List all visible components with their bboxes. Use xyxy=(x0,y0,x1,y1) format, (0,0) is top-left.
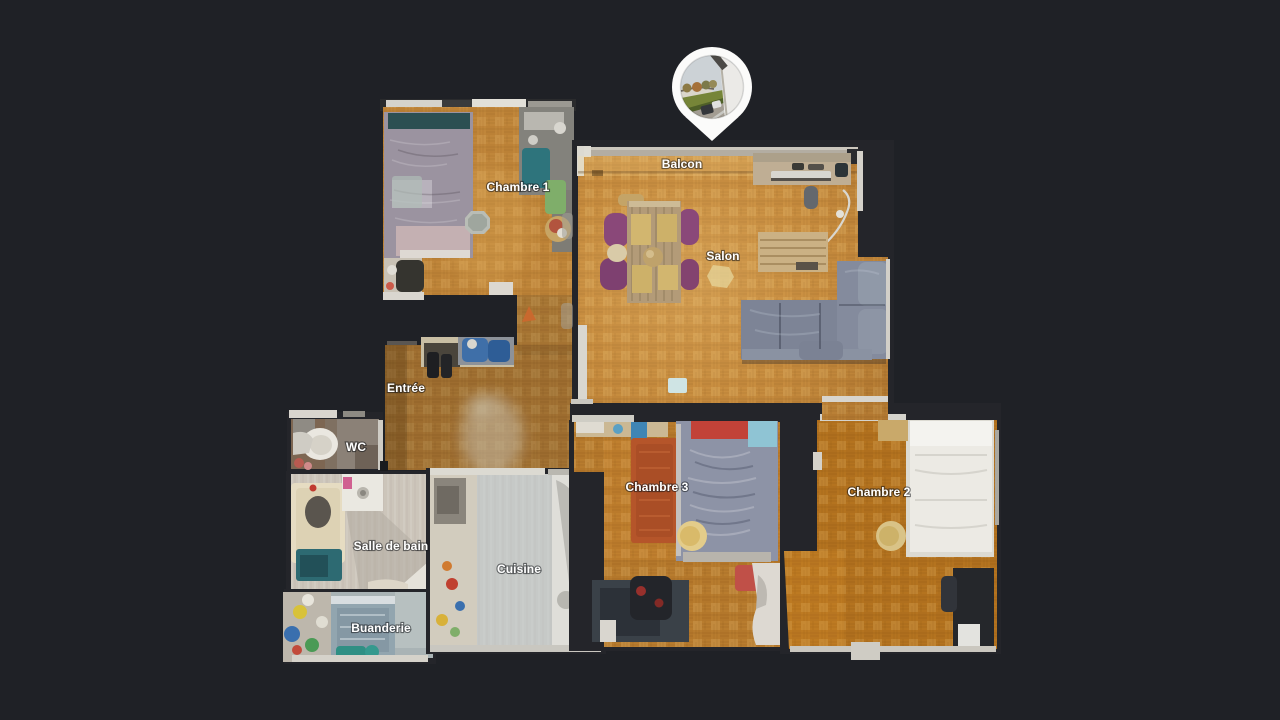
svg-text:Balcon: Balcon xyxy=(662,157,703,171)
svg-text:Buanderie: Buanderie xyxy=(351,621,411,635)
svg-text:Cuisine: Cuisine xyxy=(497,562,541,576)
svg-text:Salle de bain: Salle de bain xyxy=(354,539,429,553)
svg-text:Chambre 3: Chambre 3 xyxy=(626,480,689,494)
svg-text:Chambre 2: Chambre 2 xyxy=(848,485,911,499)
svg-text:Chambre 1: Chambre 1 xyxy=(487,180,550,194)
svg-text:WC: WC xyxy=(346,440,366,454)
svg-text:Entrée: Entrée xyxy=(387,381,425,395)
svg-text:Salon: Salon xyxy=(706,249,739,263)
